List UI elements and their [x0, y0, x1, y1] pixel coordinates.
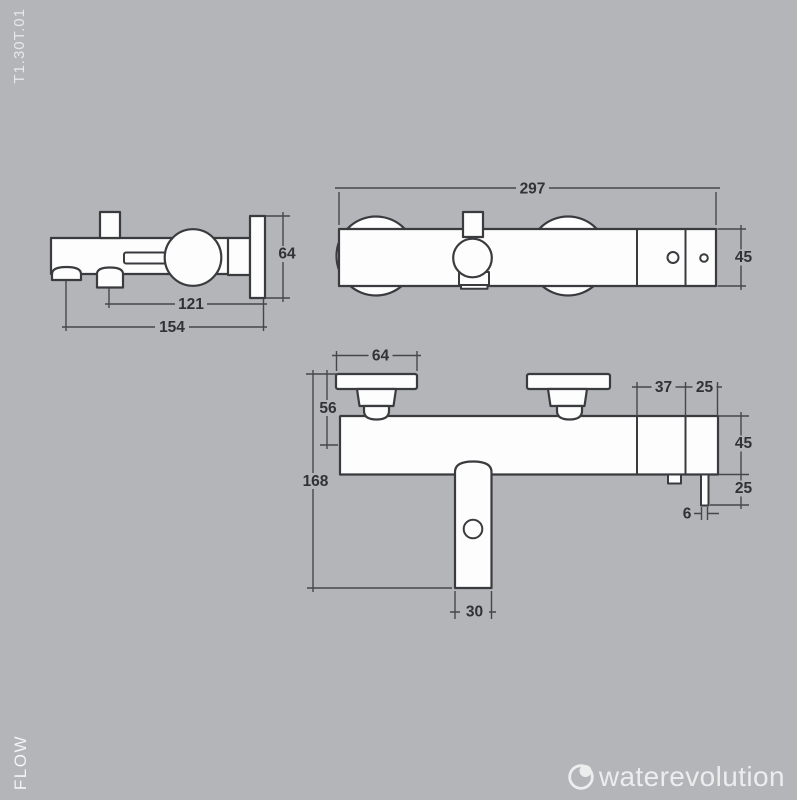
mixer-body-bottom	[340, 416, 718, 475]
wall-flange-left-plate	[336, 374, 417, 389]
dim-body-height-front: 45	[735, 249, 753, 266]
lever-tip-front	[461, 285, 488, 289]
wall-flange-right-plate	[527, 374, 610, 389]
dim-body-height-bottom: 45	[735, 435, 753, 452]
outlet-hole-front	[668, 252, 679, 263]
front-view: 297 45	[335, 181, 755, 296]
screw-hole-front	[700, 254, 708, 262]
ext-lines-6	[702, 507, 708, 520]
water-drop-circle-icon	[566, 761, 596, 792]
dim-wall-to-outlet: 121	[178, 296, 204, 313]
bottom-tab	[668, 475, 681, 484]
drawing-sheet: T1.30T.01 FLOW 64 121 154	[0, 0, 797, 800]
flange-left-neck	[364, 406, 389, 420]
bottom-view: 64 56 168 37 25 45 25 6 30	[298, 348, 755, 621]
dim-wall-to-axis: 56	[319, 400, 337, 417]
brand-logo: waterevolution	[566, 761, 785, 792]
brand-name: waterevolution	[599, 763, 785, 791]
handle-knob-front	[453, 239, 492, 278]
flange-right-step	[548, 389, 587, 406]
dim-body-right-seg: 37	[655, 379, 672, 396]
diverter-knob-front	[463, 212, 483, 237]
dim-spout-width: 30	[466, 604, 483, 621]
bottom-connector-side	[97, 268, 123, 288]
mixer-body-front	[339, 229, 716, 286]
dim-total-depth: 154	[159, 319, 185, 336]
dim-total-width: 297	[520, 181, 546, 198]
spout-outlet-side	[52, 267, 81, 280]
side-view: 64 121 154	[51, 212, 299, 336]
diverter-knob-side	[100, 212, 120, 238]
technical-drawing: 64 121 154 297 45	[0, 0, 797, 800]
spout-hole	[464, 520, 483, 539]
handle-knob-side	[165, 229, 222, 286]
flange-right-neck	[557, 406, 582, 420]
cartridge-housing-side	[228, 238, 250, 275]
dim-pin-length: 25	[735, 480, 753, 497]
dim-flange-width: 64	[372, 348, 390, 365]
flange-left-step	[357, 389, 396, 406]
dim-end-seg: 25	[696, 379, 714, 396]
wall-plate-side	[250, 216, 265, 298]
dim-total-height: 168	[303, 473, 329, 490]
dim-plate-height: 64	[278, 246, 296, 263]
dim-pin-width: 6	[683, 506, 692, 523]
bottom-pin	[701, 475, 709, 506]
